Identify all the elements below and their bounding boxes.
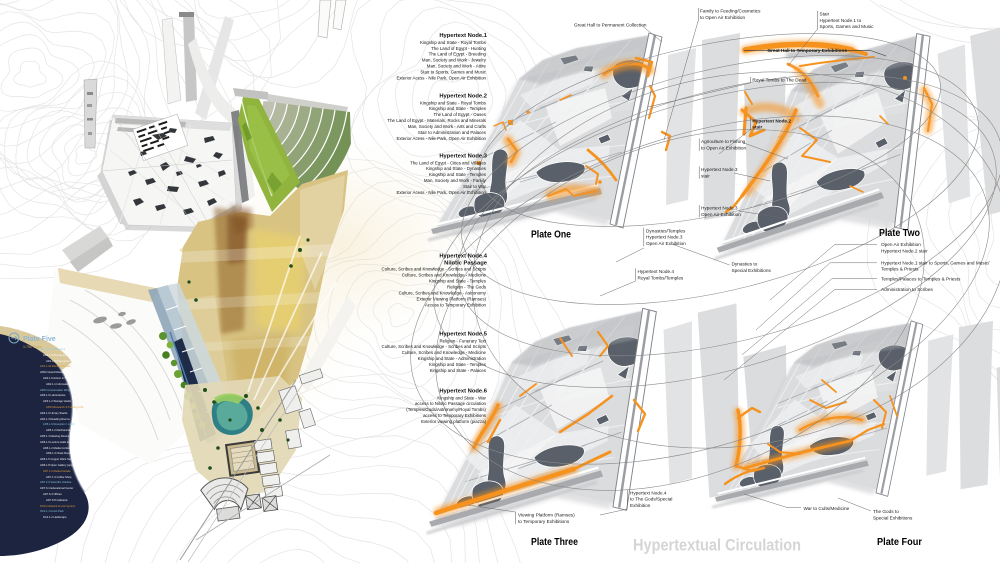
svg-text:Special Exhibitions: Special Exhibitions: [732, 268, 772, 273]
svg-text:AD6.1.0 Lecture Halls & Meetin: AD6.1.0 Lecture Halls & Meeting Rooms: [40, 440, 89, 444]
svg-text:Hypertext Node.3: Hypertext Node.3: [439, 154, 487, 160]
svg-text:Access to Temporary Exhibition: Access to Temporary Exhibition: [425, 302, 487, 307]
svg-text:Culture, Scribes and Knowledge: Culture, Scribes and Knowledge - Astrono…: [399, 290, 487, 295]
svg-text:AP02 Grand Museum Entrance: AP02 Grand Museum Entrance: [40, 370, 78, 374]
svg-text:AD6.1.8 Open Gallery (upper &: AD6.1.8 Open Gallery (upper & lower): [40, 463, 86, 467]
svg-text:AD7.1.0 Media Facade: AD7.1.0 Media Facade: [43, 469, 71, 473]
svg-text:War to Cults/Medicine: War to Cults/Medicine: [804, 506, 850, 511]
svg-text:Viewing Platform (Ramses): Viewing Platform (Ramses): [518, 513, 575, 518]
svg-text:Kingship and State - Palaces: Kingship and State - Palaces: [430, 368, 487, 373]
svg-text:Stair to Sports, Games and Mus: Stair to Sports, Games and Music: [420, 70, 486, 75]
svg-text:AP03 Conservation Wing: AP03 Conservation Wing: [40, 388, 71, 392]
svg-text:to Open Air Exhibition: to Open Air Exhibition: [701, 145, 746, 150]
svg-text:Temples & Priests: Temples & Priests: [881, 267, 919, 272]
svg-text:The Land of Egypt - Cities and: The Land of Egypt - Cities and Villages: [410, 160, 487, 165]
svg-text:SC2.1.1 Kunst Park: SC2.1.1 Kunst Park: [40, 509, 64, 513]
svg-text:Plate Four: Plate Four: [877, 537, 922, 548]
svg-text:Hypertext Node.1 stair to Spor: Hypertext Node.1 stair to Sports, Games …: [881, 260, 990, 265]
svg-text:Exterior viewing platform (pia: Exterior viewing platform (piazza): [421, 419, 486, 424]
svg-text:AD1.1.0 Permanent Collection G: AD1.1.0 Permanent Collection Galleries: [43, 353, 91, 357]
svg-text:Hypertext Node.2 stair: Hypertext Node.2 stair: [881, 248, 928, 253]
svg-text:Man, Society and Work - Arts a: Man, Society and Work - Arts and Crafts: [408, 124, 487, 129]
svg-text:Royal Tombs/Temples: Royal Tombs/Temples: [638, 275, 684, 280]
svg-text:The Land of Egypt - Materials,: The Land of Egypt - Materials, Rocks and…: [387, 118, 486, 123]
svg-text:Man, Society and Work - Attire: Man, Society and Work - Attire: [427, 64, 487, 69]
svg-text:Family to Feeding/Cosmetics: Family to Feeding/Cosmetics: [700, 9, 761, 14]
svg-text:AD6.1.5 Copper Ware Seating: AD6.1.5 Copper Ware Seating: [40, 457, 77, 461]
svg-text:to Open Air Exhibition: to Open Air Exhibition: [700, 15, 745, 20]
svg-text:AD1.1.20 Rooftop Terrace: AD1.1.20 Rooftop Terrace: [40, 364, 72, 368]
svg-text:Plate One: Plate One: [531, 230, 571, 241]
svg-text:Man, Society and Work - Jewelr: Man, Society and Work - Jewelry: [422, 58, 487, 63]
svg-text:Exterior Viewing Platform (Ram: Exterior Viewing Platform (Ramses): [417, 296, 487, 301]
svg-text:Hypertext Node.1 to: Hypertext Node.1 to: [820, 18, 862, 23]
svg-text:Hypertext Node.6: Hypertext Node.6: [439, 389, 487, 395]
svg-text:Great Hall to Temporary Exhibi: Great Hall to Temporary Exhibitions: [767, 48, 847, 53]
svg-text:Stair: Stair: [820, 12, 830, 17]
svg-text:Plate Five: Plate Five: [23, 336, 56, 343]
svg-text:Open Air Exhibition: Open Air Exhibition: [701, 212, 741, 217]
svg-text:Hypertext Node.3: Hypertext Node.3: [701, 206, 738, 211]
svg-text:AD6.1.3 Cloak Room: AD6.1.3 Cloak Room: [46, 451, 72, 455]
svg-text:Culture, Scribes and Knowledge: Culture, Scribes and Knowledge - Medicin…: [402, 273, 487, 278]
svg-text:to Temporary Exhibitions: to Temporary Exhibitions: [518, 519, 570, 524]
svg-text:AD2.1.1 Information Desk: AD2.1.1 Information Desk: [46, 382, 77, 386]
svg-text:Exterior Acess - Nile Park, Op: Exterior Acess - Nile Park, Open Air Exh…: [396, 190, 486, 195]
svg-text:The Land of Egypt - Breeding: The Land of Egypt - Breeding: [429, 52, 487, 57]
svg-text:Open Air Exhibition: Open Air Exhibition: [646, 241, 686, 246]
svg-text:Hypertext Node.4: Hypertext Node.4: [630, 490, 667, 495]
svg-text:Hypertext Node.3: Hypertext Node.3: [646, 235, 683, 240]
svg-text:Exterior Acess - Nile Park, Op: Exterior Acess - Nile Park, Open Air Exh…: [396, 136, 486, 141]
svg-text:AD7.6.8 Cafeteria: AD7.6.8 Cafeteria: [46, 498, 68, 502]
svg-text:to The Gods/Special: to The Gods/Special: [630, 497, 672, 502]
svg-text:Hypertext Node.2: Hypertext Node.2: [439, 94, 487, 100]
svg-text:Administration to Scribes: Administration to Scribes: [881, 287, 934, 292]
svg-text:AD4.1.0 Library Stacks: AD4.1.0 Library Stacks: [40, 411, 68, 415]
svg-text:AD5.1.4 Meeting Rooms: AD5.1.4 Meeting Rooms: [40, 434, 70, 438]
svg-text:Great Hall to Permanent Collec: Great Hall to Permanent Collection: [574, 23, 647, 28]
svg-text:SC01 Network & Link System: SC01 Network & Link System: [40, 504, 76, 508]
svg-text:Kingship and State - Administr: Kingship and State - Administration: [418, 356, 487, 361]
svg-text:Kingship and State - Temples: Kingship and State - Temples: [429, 362, 487, 367]
svg-text:Kingship and State - Temples: Kingship and State - Temples: [429, 106, 487, 111]
svg-text:AP01 Exhibition Area: AP01 Exhibition Area: [40, 347, 66, 351]
svg-text:AD1.1.8 Panoramic Restaurant: AD1.1.8 Panoramic Restaurant: [46, 359, 83, 363]
svg-text:Special Exhibitions: Special Exhibitions: [873, 515, 913, 520]
svg-text:Sports, Games and Music: Sports, Games and Music: [820, 24, 875, 29]
svg-text:Plate Two: Plate Two: [879, 228, 920, 239]
svg-text:Hypertext Node.3: Hypertext Node.3: [701, 167, 738, 172]
svg-text:Kingship and State - Temples: Kingship and State - Temples: [429, 279, 487, 284]
svg-text:Culture, Scribes and Knowledge: Culture, Scribes and Knowledge - Scribes…: [382, 344, 487, 349]
svg-text:The Gods to: The Gods to: [873, 509, 899, 514]
svg-text:Religion - Funerary Text: Religion - Funerary Text: [439, 338, 486, 343]
svg-text:Hypertext Node.1: Hypertext Node.1: [439, 33, 487, 39]
svg-text:Temples/Palaces to Temples & P: Temples/Palaces to Temples & Priests: [881, 276, 961, 281]
svg-text:AD7.1.3 Coffee Shop: AD7.1.3 Coffee Shop: [46, 475, 72, 479]
svg-text:Plate Three: Plate Three: [531, 537, 578, 548]
svg-text:AD4.1.3 Reading Rooms: AD4.1.3 Reading Rooms: [40, 417, 70, 421]
svg-text:stair: stair: [701, 173, 710, 178]
svg-text:access to Nilotic Passage circ: access to Nilotic Passage circulation: [415, 401, 487, 406]
svg-text:Hypertext Node.4: Hypertext Node.4: [439, 254, 487, 260]
svg-text:AD7.2.0 Scientific Institute: AD7.2.0 Scientific Institute: [40, 480, 72, 484]
svg-text:Hypertext Node.4: Hypertext Node.4: [638, 269, 675, 274]
svg-text:AD7.6.1 Educational Center: AD7.6.1 Educational Center: [40, 486, 73, 490]
svg-text:Kingship and State - Royal Tom: Kingship and State - Royal Tombs: [420, 100, 487, 105]
svg-text:AD5.1.2 Mechanical (Public Are: AD5.1.2 Mechanical (Public Area): [46, 428, 86, 432]
svg-text:stair: stair: [752, 125, 762, 130]
svg-text:AD6.1.2 Media Conference Hall: AD6.1.2 Media Conference Hall: [43, 446, 81, 450]
svg-text:Agrioulture to Fishing: Agrioulture to Fishing: [701, 139, 746, 144]
svg-text:AD5.1.0 Reception / Lobby: AD5.1.0 Reception / Lobby: [43, 422, 76, 426]
svg-text:Kingship and State - Temples: Kingship and State - Temples: [429, 172, 487, 177]
svg-text:The Land of Egypt - Hunting: The Land of Egypt - Hunting: [431, 46, 486, 51]
svg-text:The Land of Egypt - Oases: The Land of Egypt - Oases: [434, 112, 487, 117]
svg-text:Stair to Administration and Pa: Stair to Administration and Palaces: [418, 130, 487, 135]
svg-text:Hypertextual Circulation: Hypertextual Circulation: [633, 536, 801, 555]
svg-text:Exterior Acess - Nile Park, Op: Exterior Acess - Nile Park, Open Air Exh…: [396, 76, 486, 81]
svg-text:Culture, Scribes and Knowledge: Culture, Scribes and Knowledge - Medicin…: [402, 350, 487, 355]
svg-text:AP04 Research & Training Unit: AP04 Research & Training Unit: [46, 405, 83, 409]
svg-text:Stair to War: Stair to War: [463, 184, 487, 189]
svg-text:Open Air Exhibition: Open Air Exhibition: [881, 242, 921, 247]
svg-text:Dynasties to: Dynasties to: [732, 262, 758, 267]
svg-text:Hypertext Node.5: Hypertext Node.5: [439, 332, 487, 338]
svg-text:SC2.1.2 Hardscape: SC2.1.2 Hardscape: [43, 515, 67, 519]
svg-text:Culture, Scribes and Knowledge: Culture, Scribes and Knowledge - Scribes…: [382, 267, 487, 272]
svg-text:Royal Tombs to The Dead: Royal Tombs to The Dead: [752, 78, 806, 83]
svg-text:Hypertext Node.2: Hypertext Node.2: [752, 118, 791, 123]
svg-text:Kingship and State - War: Kingship and State - War: [437, 395, 486, 400]
svg-text:(Temples/Gods/Astronomy/Royal: (Temples/Gods/Astronomy/Royal Tombs): [406, 407, 486, 412]
svg-text:AD7.6.4 Offices: AD7.6.4 Offices: [43, 492, 62, 496]
svg-text:Man, Society and Work - Family: Man, Society and Work - Family: [424, 178, 487, 183]
svg-text:Exhibition: Exhibition: [630, 503, 651, 508]
svg-text:AD2.1.0 Atrium & Ticketing: AD2.1.0 Atrium & Ticketing: [43, 376, 75, 380]
svg-text:Nilotic Passage: Nilotic Passage: [444, 260, 488, 266]
svg-text:Kingship and State - Dynasties: Kingship and State - Dynasties: [426, 166, 487, 171]
svg-text:access to Temporary Exhibition: access to Temporary Exhibitions: [423, 413, 487, 418]
svg-text:Kingship and State - Royal Tom: Kingship and State - Royal Tombs: [420, 40, 487, 45]
svg-text:AD3.1.2 Storage Vaults: AD3.1.2 Storage Vaults: [43, 399, 72, 403]
svg-text:AD3.1.0 Laboratories: AD3.1.0 Laboratories: [40, 393, 66, 397]
svg-text:Religion - The Gods: Religion - The Gods: [447, 284, 487, 289]
svg-text:Dynasties/Temples: Dynasties/Temples: [646, 228, 686, 233]
